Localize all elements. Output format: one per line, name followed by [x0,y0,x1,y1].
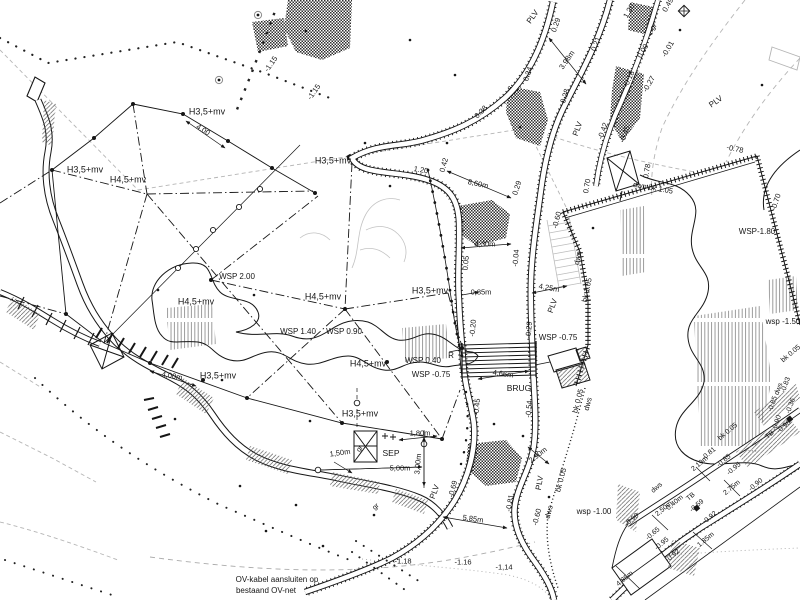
existing-topography-gray [0,0,800,600]
survey-network [0,104,468,488]
pond-center [152,263,478,370]
weir-structure [535,347,590,388]
site-plan-canvas: H3,5+mvH3,5+mvH4,5+mvH3,5+mvH4,5+mvH4,5+… [0,0,800,600]
site-plan-svg [0,0,800,600]
culvert-symbols [90,333,396,462]
survey-nodes [50,102,464,441]
pond-east [620,150,800,469]
dotted-rows [0,14,425,596]
